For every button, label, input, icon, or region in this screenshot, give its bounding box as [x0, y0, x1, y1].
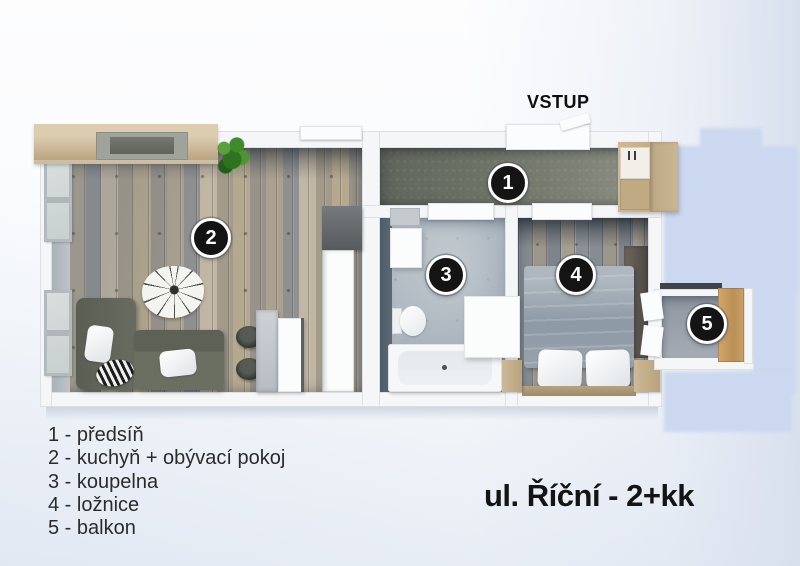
legend-item-2: 2 - kuchyň + obývací pokoj — [48, 447, 285, 470]
entrance-label: VSTUP — [527, 92, 590, 113]
room-marker-1: 1 — [488, 163, 528, 203]
room-marker-2-number: 2 — [205, 227, 216, 249]
bar-table — [256, 310, 278, 392]
room-marker-4-number: 4 — [570, 264, 581, 286]
nightstand-left — [502, 360, 522, 392]
sofa-pillow-white — [84, 324, 115, 363]
bed-pillow-right — [585, 349, 630, 389]
living-room-top-threshold — [300, 126, 362, 140]
bathroom-shelf — [390, 208, 420, 226]
plan-title: ul. Říční - 2+kk — [484, 478, 694, 514]
room-marker-5: 5 — [687, 304, 727, 344]
room-marker-2: 2 — [191, 218, 231, 258]
entrance-door-threshold — [506, 124, 590, 150]
bathroom-door-threshold — [428, 203, 494, 220]
wall-living-hall-divider — [362, 131, 380, 407]
toilet-bowl — [400, 306, 426, 336]
legend: 1 - předsíň 2 - kuchyň + obývací pokoj 3… — [48, 424, 285, 540]
kitchen-appliance — [322, 206, 362, 250]
kitchen-hood-vent — [110, 137, 174, 154]
hall-wardrobe-lower — [620, 179, 650, 210]
living-room-window-bottom — [44, 290, 72, 376]
kitchen-tall-cabinet — [322, 250, 354, 392]
plan-bottom-shadow — [46, 406, 658, 420]
balcony-railing-cap — [744, 288, 753, 364]
bathtub-drain — [442, 365, 447, 370]
plant — [212, 132, 252, 178]
room-marker-3: 3 — [426, 255, 466, 295]
floorplan-image: 1 2 3 4 5 VSTUP 1 - předsíň 2 - kuchyň +… — [0, 0, 800, 566]
bathroom-sink — [390, 228, 422, 268]
wardrobe-handle-left — [628, 151, 630, 160]
room-marker-5-number: 5 — [701, 313, 712, 335]
legend-item-1: 1 - předsíň — [48, 424, 285, 447]
bathroom-cabinet — [464, 296, 520, 358]
room-marker-4: 4 — [556, 255, 596, 295]
legend-item-4: 4 - ložnice — [48, 494, 285, 517]
balcony-door-leaf-bottom — [640, 325, 664, 357]
bed-foot-frame — [522, 386, 636, 396]
cast-shadow-bottom-right — [664, 372, 792, 432]
cast-shadow-right — [664, 146, 798, 294]
room-marker-3-number: 3 — [440, 264, 451, 286]
hall-wardrobe — [618, 142, 678, 212]
legend-item-3: 3 - koupelna — [48, 471, 285, 494]
wardrobe-handle-right — [634, 151, 636, 160]
room-marker-1-number: 1 — [502, 172, 513, 194]
bed-pillow-left — [537, 349, 582, 389]
balcony-door-leaf-top — [640, 291, 664, 322]
legend-item-5: 5 - balkon — [48, 517, 285, 540]
sideboard — [278, 318, 304, 392]
hall-wardrobe-side — [650, 142, 678, 212]
sofa-pillow-gray — [159, 348, 198, 378]
bedroom-door-threshold — [532, 203, 592, 220]
living-room-window-top — [44, 158, 72, 242]
